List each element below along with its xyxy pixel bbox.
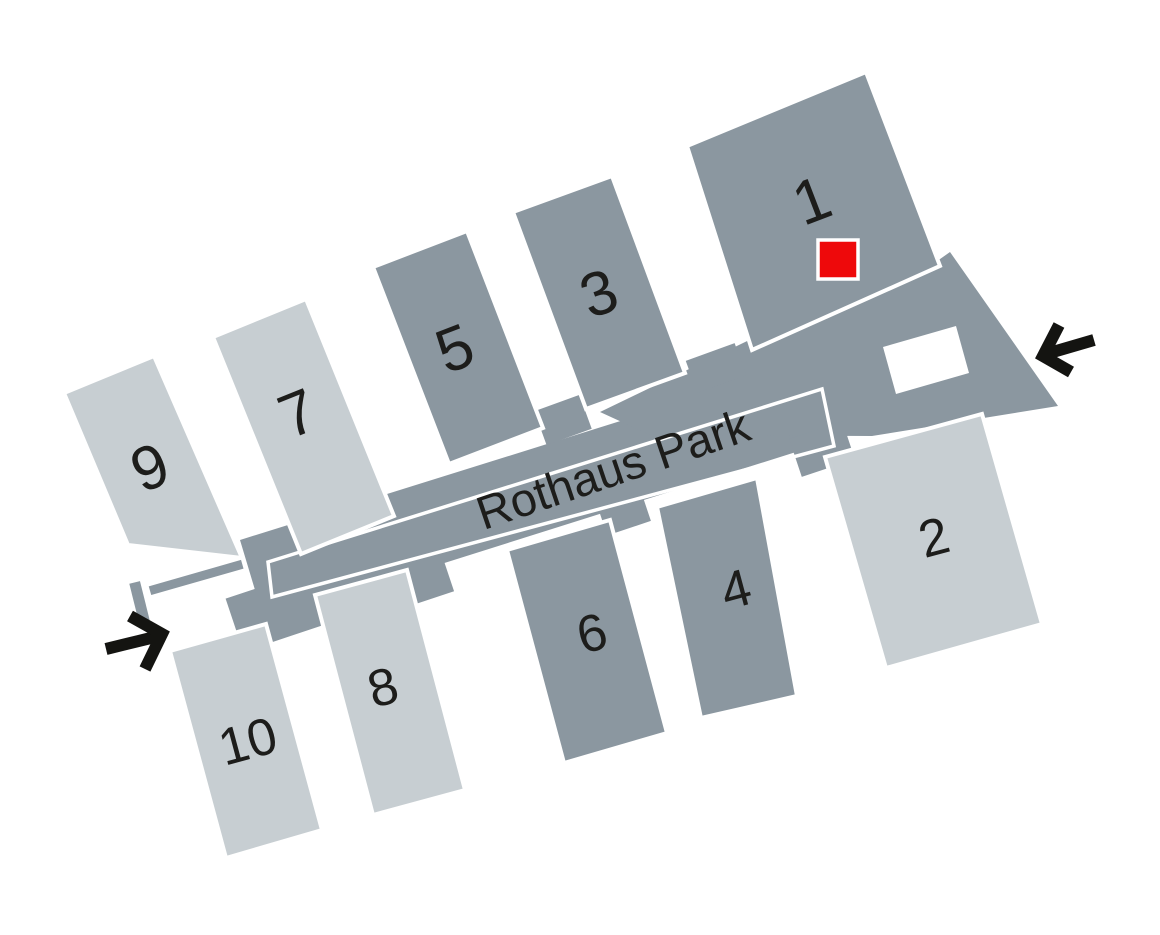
entrance-arrow-right-icon (1043, 325, 1094, 372)
location-marker (818, 240, 858, 279)
rothaus-park-map-canvas: 9 7 5 3 1 10 8 6 4 2 Rothaus Park (0, 0, 1160, 935)
site-plan-map: 9 7 5 3 1 10 8 6 4 2 Rothaus Park (0, 0, 1160, 935)
left-entrance-path-strip (149, 560, 244, 595)
entrance-arrow-left-icon (106, 616, 162, 669)
